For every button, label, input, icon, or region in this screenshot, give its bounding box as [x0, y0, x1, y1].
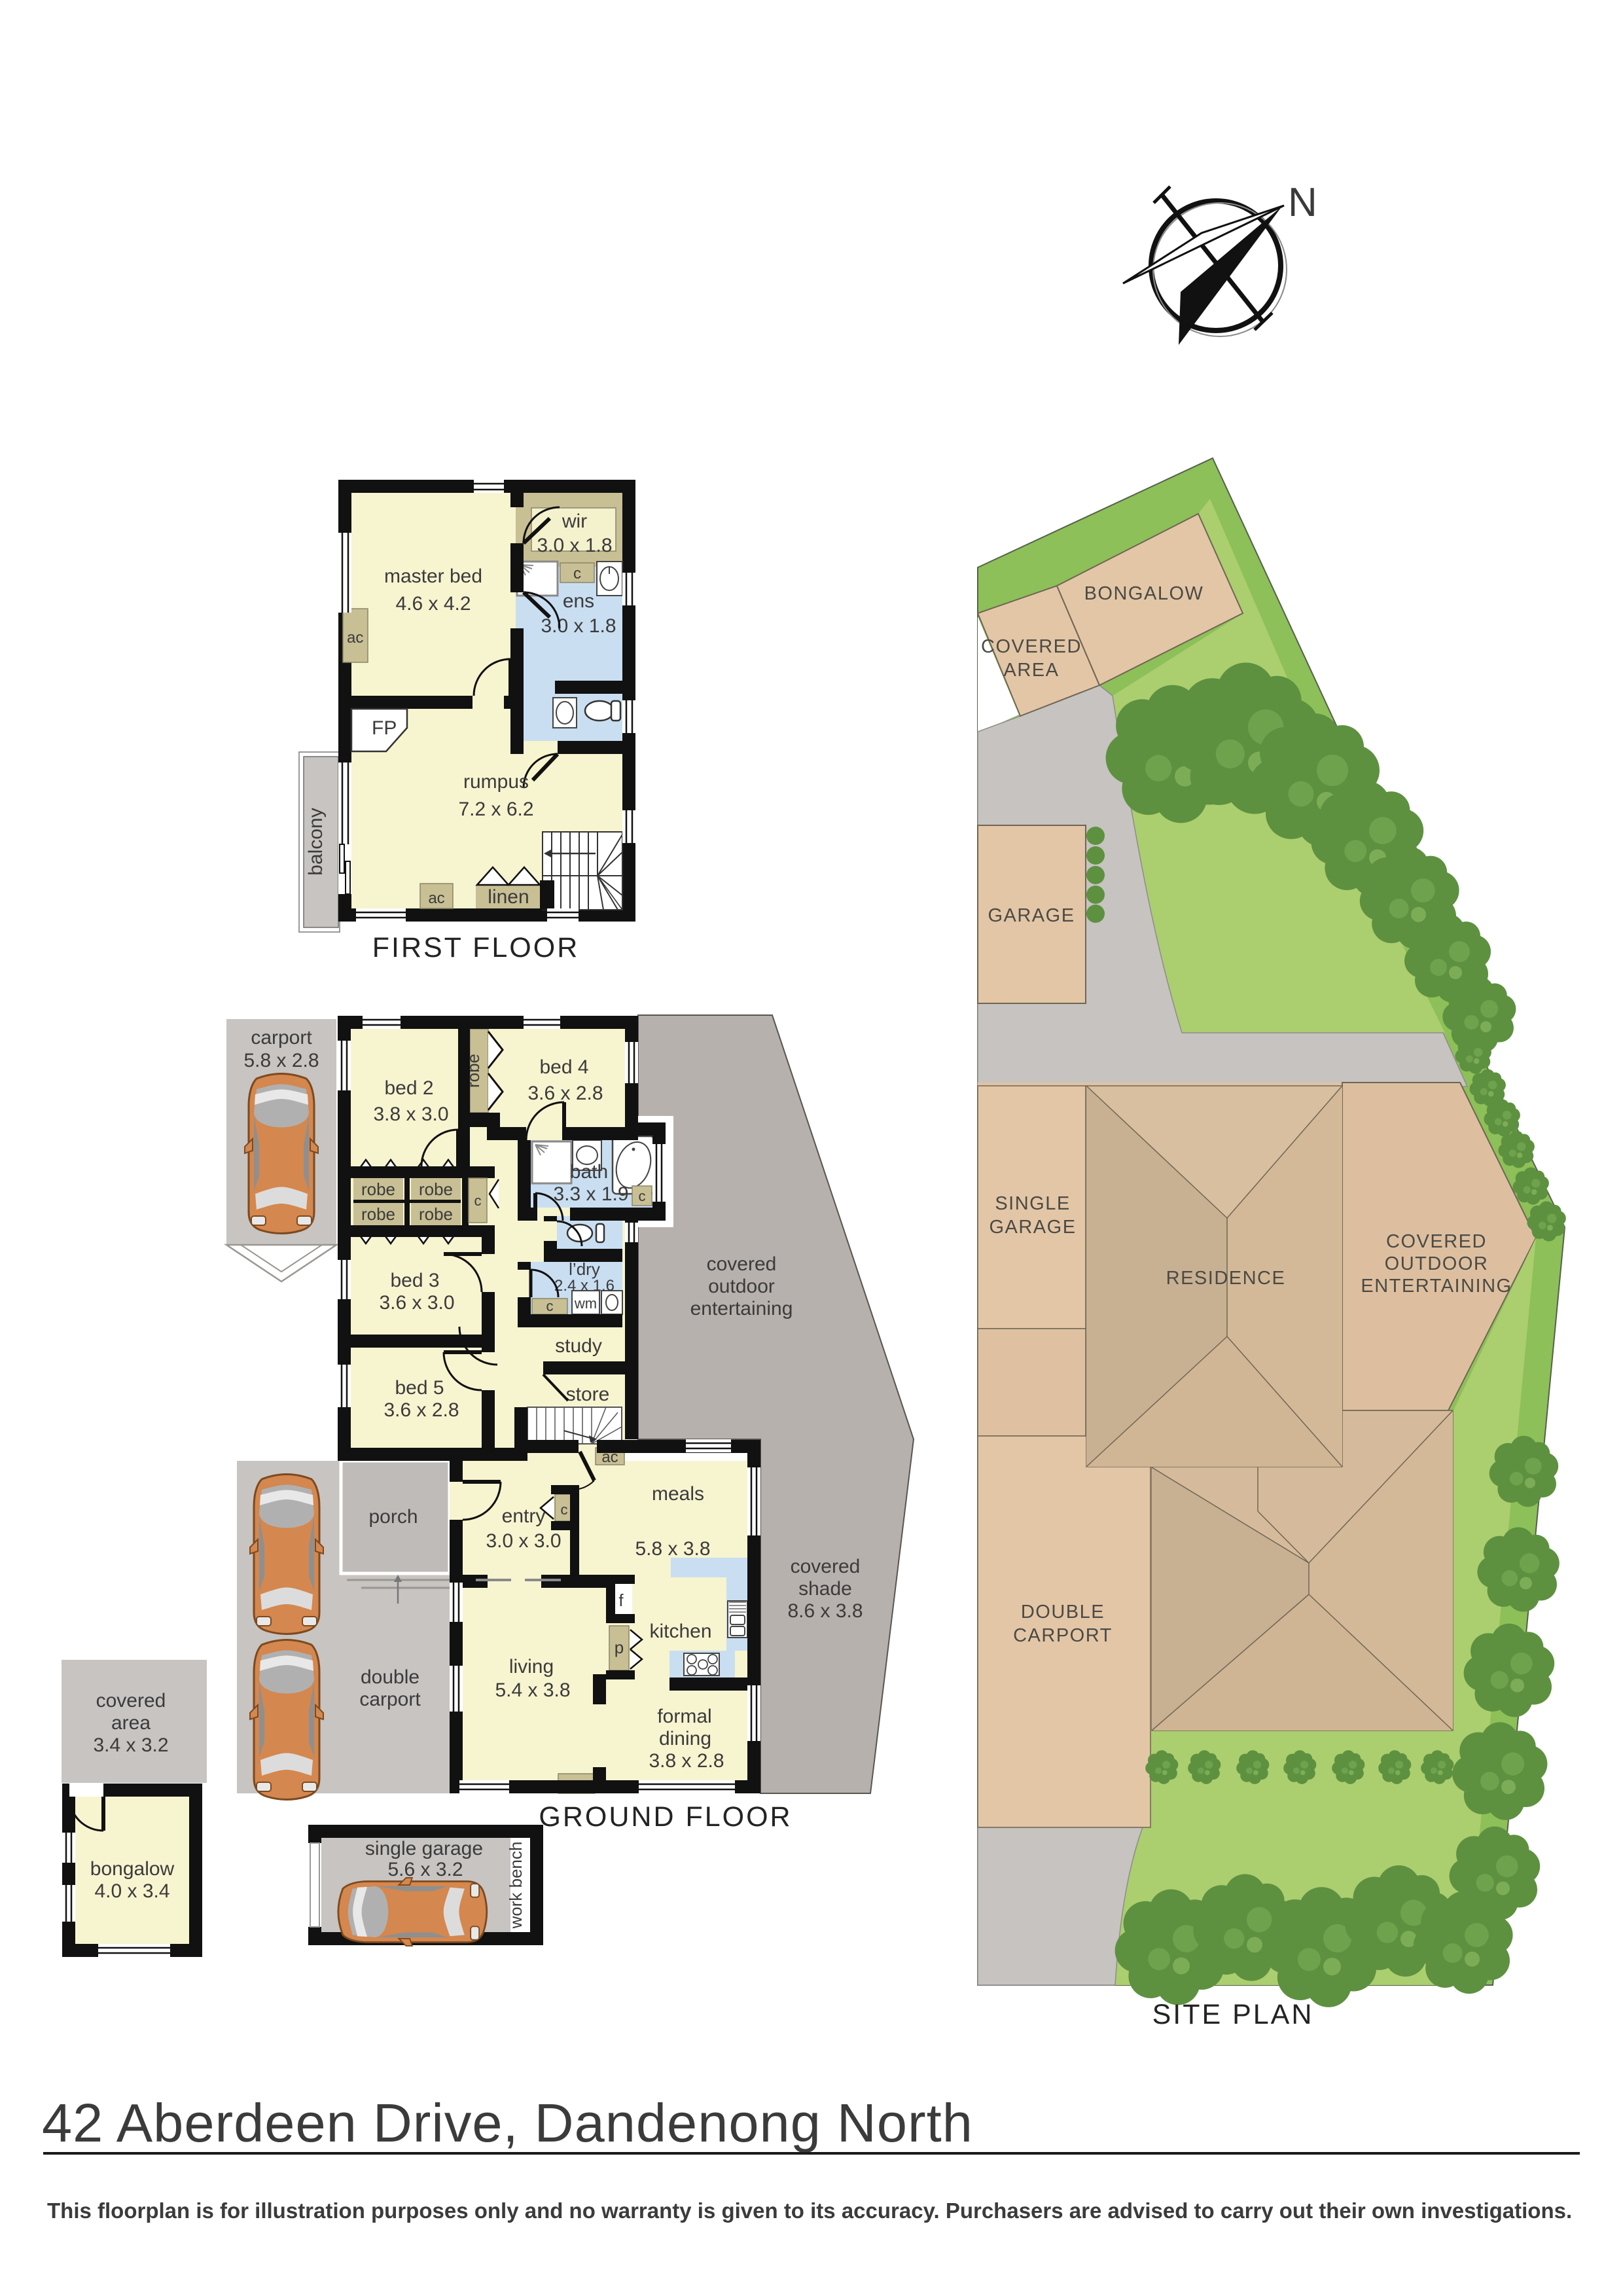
- svg-text:master bed: master bed: [384, 565, 482, 587]
- svg-text:carport: carport: [359, 1689, 421, 1710]
- svg-text:4.6 x 4.2: 4.6 x 4.2: [395, 593, 471, 615]
- svg-text:robe: robe: [419, 1204, 453, 1224]
- svg-text:bed 4: bed 4: [539, 1056, 588, 1078]
- svg-text:This floorplan is for illustra: This floorplan is for illustration purpo…: [47, 2198, 1572, 2223]
- svg-text:wir: wir: [562, 511, 587, 532]
- svg-text:wm: wm: [574, 1295, 597, 1312]
- svg-text:balcony: balcony: [305, 808, 327, 875]
- svg-text:store: store: [566, 1384, 610, 1405]
- svg-text:3.3 x 1.9: 3.3 x 1.9: [553, 1183, 628, 1205]
- svg-text:SINGLE: SINGLE: [995, 1193, 1070, 1214]
- svg-text:covered: covered: [96, 1690, 166, 1712]
- svg-text:3.6 x 2.8: 3.6 x 2.8: [383, 1399, 459, 1421]
- svg-text:carport: carport: [251, 1027, 312, 1049]
- svg-text:covered: covered: [791, 1556, 861, 1577]
- svg-text:GARAGE: GARAGE: [988, 905, 1075, 926]
- svg-text:ac: ac: [428, 889, 444, 907]
- svg-text:SITE PLAN: SITE PLAN: [1152, 1999, 1314, 2030]
- svg-text:bed 2: bed 2: [384, 1077, 433, 1099]
- svg-text:3.8 x 3.0: 3.8 x 3.0: [373, 1103, 448, 1125]
- svg-text:5.6 x 3.2: 5.6 x 3.2: [387, 1859, 463, 1880]
- svg-text:5.4 x 3.8: 5.4 x 3.8: [495, 1679, 570, 1701]
- svg-text:ENTERTAINING: ENTERTAINING: [1361, 1276, 1512, 1297]
- svg-text:DOUBLE: DOUBLE: [1021, 1602, 1105, 1623]
- svg-text:COVERED: COVERED: [1386, 1231, 1487, 1252]
- svg-text:BONGALOW: BONGALOW: [1084, 583, 1204, 604]
- svg-text:5.8 x 3.8: 5.8 x 3.8: [635, 1538, 710, 1560]
- svg-text:robe: robe: [361, 1204, 395, 1224]
- svg-text:3.4 x 3.2: 3.4 x 3.2: [93, 1734, 168, 1756]
- svg-text:FP: FP: [372, 717, 397, 739]
- svg-text:kitchen: kitchen: [649, 1621, 711, 1642]
- svg-text:outdoor: outdoor: [708, 1276, 775, 1297]
- svg-text:study: study: [555, 1335, 602, 1357]
- svg-text:5.8 x 2.8: 5.8 x 2.8: [243, 1050, 319, 1071]
- svg-text:rumpus: rumpus: [463, 771, 529, 793]
- svg-text:p: p: [615, 1638, 624, 1657]
- svg-text:dining: dining: [659, 1728, 711, 1749]
- svg-text:work bench: work bench: [506, 1842, 526, 1929]
- svg-text:c: c: [474, 1193, 482, 1209]
- svg-text:bed 5: bed 5: [395, 1377, 444, 1399]
- svg-text:CARPORT: CARPORT: [1013, 1625, 1113, 1646]
- svg-text:GROUND FLOOR: GROUND FLOOR: [539, 1801, 792, 1833]
- svg-text:3.8 x 2.8: 3.8 x 2.8: [649, 1750, 724, 1772]
- svg-text:c: c: [561, 1501, 568, 1518]
- svg-text:shade: shade: [798, 1578, 852, 1600]
- svg-text:meals: meals: [652, 1483, 704, 1505]
- svg-text:FIRST FLOOR: FIRST FLOOR: [372, 932, 580, 963]
- svg-text:OUTDOOR: OUTDOOR: [1385, 1253, 1489, 1274]
- svg-text:single garage: single garage: [365, 1838, 483, 1859]
- svg-text:bed 3: bed 3: [390, 1270, 439, 1291]
- svg-text:covered: covered: [707, 1253, 777, 1275]
- svg-text:GARAGE: GARAGE: [989, 1217, 1076, 1238]
- svg-text:linen: linen: [488, 886, 529, 908]
- svg-text:robe: robe: [361, 1179, 395, 1199]
- svg-text:RESIDENCE: RESIDENCE: [1166, 1268, 1286, 1289]
- svg-text:bongalow: bongalow: [90, 1858, 175, 1880]
- svg-text:entertaining: entertaining: [690, 1298, 793, 1319]
- svg-text:42 Aberdeen Drive, Dandenong N: 42 Aberdeen Drive, Dandenong North: [42, 2092, 973, 2153]
- svg-text:robe: robe: [419, 1179, 453, 1199]
- svg-text:living: living: [509, 1656, 554, 1677]
- svg-text:c: c: [573, 565, 581, 583]
- svg-text:c: c: [546, 1298, 554, 1314]
- svg-text:bath: bath: [570, 1161, 608, 1183]
- svg-text:double: double: [361, 1666, 419, 1688]
- svg-text:8.6 x 3.8: 8.6 x 3.8: [787, 1600, 863, 1622]
- svg-text:7.2 x 6.2: 7.2 x 6.2: [458, 798, 533, 820]
- svg-text:f: f: [618, 1590, 624, 1610]
- svg-text:ac: ac: [347, 629, 363, 647]
- svg-text:COVERED: COVERED: [981, 636, 1082, 657]
- svg-text:AREA: AREA: [1004, 660, 1060, 681]
- svg-text:porch: porch: [368, 1506, 418, 1528]
- svg-text:3.6 x 3.0: 3.6 x 3.0: [379, 1292, 454, 1314]
- svg-text:ens: ens: [563, 590, 594, 612]
- svg-text:l’dry: l’dry: [569, 1259, 600, 1279]
- svg-text:3.6 x 2.8: 3.6 x 2.8: [527, 1083, 603, 1104]
- svg-text:3.0 x 3.0: 3.0 x 3.0: [486, 1530, 561, 1552]
- svg-text:c: c: [639, 1188, 646, 1204]
- svg-text:3.0 x 1.8: 3.0 x 1.8: [537, 535, 612, 556]
- svg-text:area: area: [111, 1712, 151, 1734]
- svg-text:3.0 x 1.8: 3.0 x 1.8: [541, 615, 616, 637]
- svg-text:entry: entry: [502, 1505, 546, 1527]
- svg-text:N: N: [1288, 180, 1317, 225]
- svg-text:4.0 x 3.4: 4.0 x 3.4: [94, 1880, 169, 1902]
- svg-text:formal: formal: [657, 1706, 711, 1727]
